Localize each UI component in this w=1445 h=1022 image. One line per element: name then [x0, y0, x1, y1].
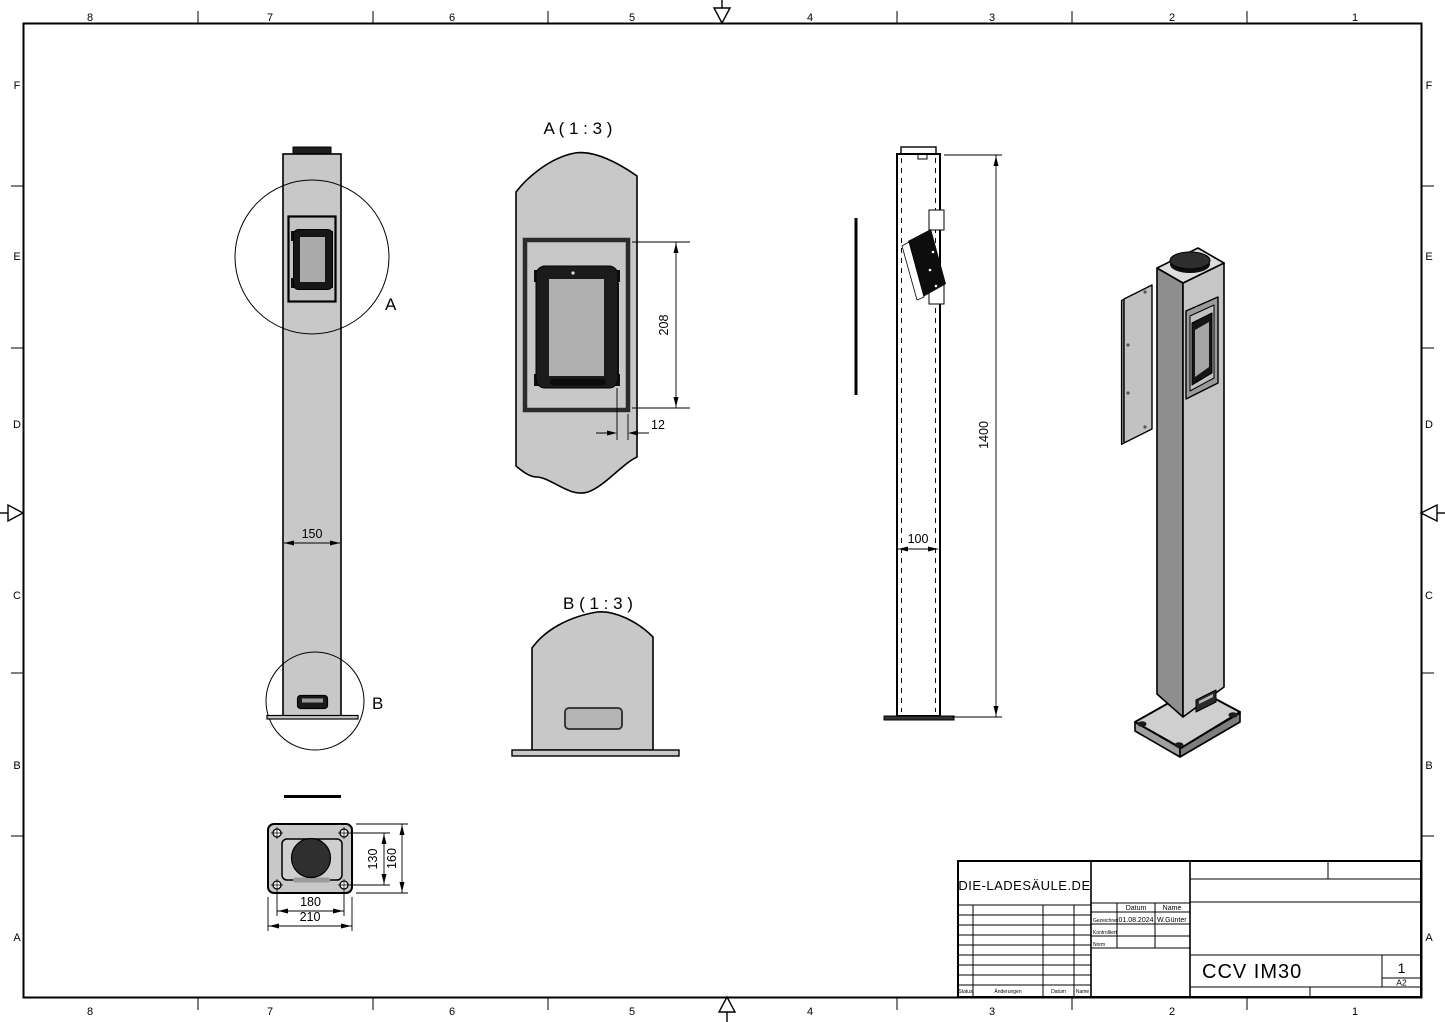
zone-col-top-2: 2: [1169, 12, 1175, 24]
base-plate-edge: [267, 716, 358, 720]
paper-format: A2: [1396, 978, 1407, 988]
slot-shadow: [293, 878, 330, 883]
zone-col-bot-2: 2: [1169, 1006, 1175, 1018]
bottom-view: 130 160 180 210: [268, 795, 408, 931]
zone-row-right-d: D: [1425, 419, 1433, 431]
dim-recess-height: 208: [632, 242, 690, 408]
zone-col-top-6: 6: [449, 12, 455, 24]
section-line-horizontal: [284, 795, 341, 798]
payment-terminal-detail: [534, 266, 620, 388]
iso-side-panel: [1122, 285, 1153, 445]
company-name: DIE-LADESÄULE.DE: [958, 878, 1090, 893]
zone-row-left-e: E: [13, 251, 20, 263]
dim-text-130: 130: [366, 849, 380, 870]
base-plate-detail: [512, 750, 679, 756]
zone-row-left-b: B: [13, 760, 20, 772]
cable-hole: [292, 839, 331, 878]
zone-col-top-1: 1: [1352, 12, 1358, 24]
detail-a-view: A ( 1 : 3 ) 208 12: [516, 119, 690, 493]
cad-drawing-sheet: 8 7 6 5 4 3 2 1 8 7 6 5 4 3 2 1 F E D C …: [0, 0, 1445, 1022]
zone-col-top-4: 4: [807, 12, 813, 24]
terminal-screen-detail: [549, 279, 604, 376]
detail-callout-b: B: [372, 694, 383, 713]
detail-a-label: A ( 1 : 3 ): [544, 119, 613, 138]
zone-col-top-7: 7: [267, 12, 273, 24]
zone-col-top-5: 5: [629, 12, 635, 24]
detail-b-label: B ( 1 : 3 ): [563, 594, 633, 613]
zone-row-left-d: D: [13, 419, 21, 431]
isometric-view: [1122, 248, 1241, 757]
zone-col-bot-3: 3: [989, 1006, 995, 1018]
detail-callout-a: A: [385, 295, 397, 314]
zone-row-right-a: A: [1425, 932, 1433, 944]
detail-b-view: B ( 1 : 3 ): [512, 594, 679, 756]
engineering-drawing: 8 7 6 5 4 3 2 1 8 7 6 5 4 3 2 1 F E D C …: [0, 0, 1445, 1022]
zone-col-top-3: 3: [989, 12, 995, 24]
title-block: DIE-LADESÄULE.DE Datum Name Gezeichnet 0…: [958, 861, 1421, 997]
dim-text-12: 12: [651, 418, 665, 432]
zone-row-right-c: C: [1425, 590, 1433, 602]
zone-row-left-a: A: [13, 932, 21, 944]
side-view: 1400 100: [856, 147, 1002, 720]
dim-text-180: 180: [300, 895, 321, 909]
dim-text-100: 100: [908, 532, 929, 546]
dim-text-1400: 1400: [977, 421, 991, 449]
cable-slot-detail: [565, 708, 622, 729]
zone-col-top-8: 8: [87, 12, 93, 24]
zone-col-bot-8: 8: [87, 1006, 93, 1018]
dim-text-210: 210: [300, 910, 321, 924]
base-plate-side: [884, 716, 954, 720]
header-name: Name: [1163, 905, 1182, 912]
front-view: A 150 B: [235, 147, 397, 750]
rev-header-changes: Änderungen: [994, 988, 1021, 995]
rev-header-name: Name: [1076, 989, 1090, 995]
zone-row-right-f: F: [1426, 80, 1433, 92]
top-cap-side: [901, 147, 936, 154]
rev-header-datum: Datum: [1051, 989, 1066, 995]
terminal-screen: [300, 237, 325, 282]
header-datum: Datum: [1126, 905, 1147, 912]
dim-base-depth: 160: [356, 824, 408, 893]
zone-col-bot-5: 5: [629, 1006, 635, 1018]
label-gezeichnet: Gezeichnet: [1093, 918, 1119, 924]
zone-row-right-b: B: [1425, 760, 1432, 772]
value-drawn-date: 01.08.2024: [1118, 917, 1153, 924]
payment-terminal: [291, 230, 333, 290]
dim-text-208: 208: [657, 315, 671, 336]
zone-row-right-e: E: [1425, 251, 1432, 263]
label-norm: Norm: [1093, 942, 1105, 948]
sheet-number: 1: [1398, 960, 1406, 976]
dim-base-hole-spacing-y: 130: [350, 833, 390, 885]
zone-col-bot-1: 1: [1352, 1006, 1358, 1018]
dim-column-height: 1400: [944, 155, 1002, 717]
dim-text-150: 150: [302, 527, 323, 541]
label-kontrolliert: Kontrolliert: [1093, 930, 1118, 936]
zone-row-left-c: C: [13, 590, 21, 602]
iso-terminal-recess: [1186, 297, 1218, 399]
value-drawn-name: W.Günter: [1157, 917, 1187, 924]
iso-top-cap: [1170, 252, 1210, 273]
zone-col-bot-6: 6: [449, 1006, 455, 1018]
rev-header-status: Status: [958, 989, 973, 995]
camera-dot: [571, 271, 574, 274]
zone-col-bot-4: 4: [807, 1006, 813, 1018]
cable-slot: [298, 696, 328, 709]
zone-row-left-f: F: [14, 80, 21, 92]
zone-col-bot-7: 7: [267, 1006, 273, 1018]
part-name: CCV IM30: [1202, 961, 1302, 983]
dim-text-160: 160: [385, 848, 399, 869]
